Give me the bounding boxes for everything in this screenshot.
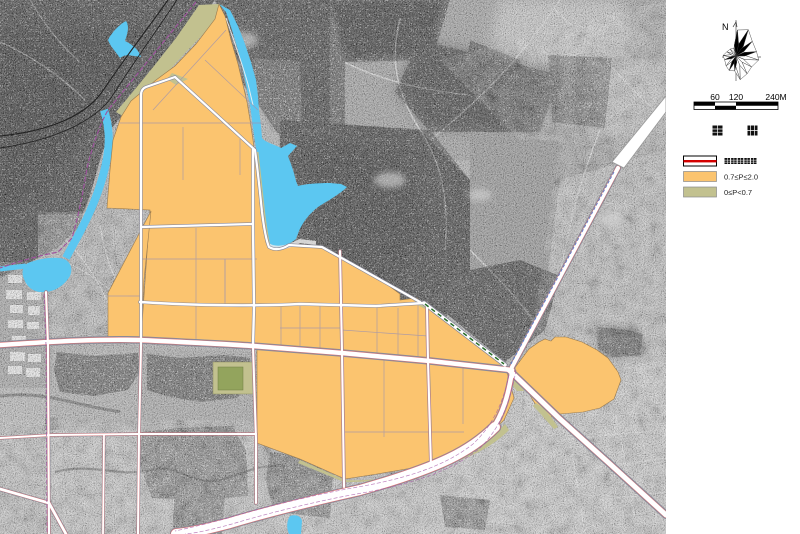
svg-text:60: 60 — [710, 92, 720, 102]
svg-text:N: N — [722, 22, 729, 32]
svg-text:0≤P<0.7: 0≤P<0.7 — [724, 188, 752, 197]
svg-text:0.7≤P≤2.0: 0.7≤P≤2.0 — [724, 173, 758, 182]
svg-text:240M: 240M — [765, 92, 786, 102]
svg-text:120: 120 — [729, 92, 743, 102]
